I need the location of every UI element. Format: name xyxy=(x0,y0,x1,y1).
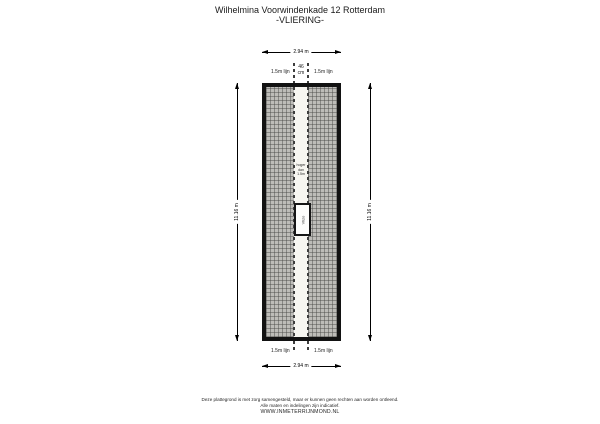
arrow-right-icon xyxy=(335,50,341,54)
center-width-unit: cm xyxy=(298,70,305,76)
dimension-bottom-label: 2.94 m xyxy=(290,363,311,369)
strip-note-line1: hoger xyxy=(297,163,306,167)
center-width-label: 46cm xyxy=(298,65,305,76)
arrow-right-icon xyxy=(335,364,341,368)
height-line-label-bottom-right: 1.5m lijn xyxy=(314,348,333,354)
loft-hatch-label: Vlizo xyxy=(300,215,305,224)
strip-note-line3: 1.5m xyxy=(297,172,305,176)
page-title: Wilhelmina Voorwindenkade 12 Rotterdam xyxy=(0,5,600,15)
floorplan-page: Wilhelmina Voorwindenkade 12 Rotterdam -… xyxy=(0,0,600,424)
dimension-left-label: 11.16 m xyxy=(234,200,240,224)
arrow-up-icon xyxy=(235,83,239,89)
loft-hatch: Vlizo xyxy=(294,203,311,236)
footer-disclaimer-line2: Alle maten en indelingen zijn indicatief… xyxy=(0,403,600,408)
height-line-stub-top-right xyxy=(307,63,309,83)
strip-note-line2: dan xyxy=(298,168,304,172)
height-line-stub-bottom-left xyxy=(293,341,295,353)
low-height-hatch-right xyxy=(308,87,337,337)
arrow-down-icon xyxy=(235,335,239,341)
page-subtitle: -VLIERING- xyxy=(0,15,600,25)
strip-note: hoger dan 1.5m xyxy=(297,163,306,177)
low-height-hatch-left xyxy=(266,87,294,337)
height-line-label-top-left: 1.5m lijn xyxy=(271,69,290,75)
height-line-stub-bottom-right xyxy=(307,341,309,353)
arrow-left-icon xyxy=(262,364,268,368)
dimension-top-label: 2.94 m xyxy=(290,49,311,55)
arrow-left-icon xyxy=(262,50,268,54)
arrow-down-icon xyxy=(368,335,372,341)
dimension-right-label: 11.16 m xyxy=(367,200,373,224)
height-line-label-bottom-left: 1.5m lijn xyxy=(271,348,290,354)
height-line-label-top-right: 1.5m lijn xyxy=(314,69,333,75)
footer-disclaimer-line1: Deze plattegrond is met zorg samengestel… xyxy=(0,397,600,402)
arrow-up-icon xyxy=(368,83,372,89)
footer-website: WWW.INMETERRIJNMOND.NL xyxy=(0,409,600,415)
height-line-stub-top-left xyxy=(293,63,295,83)
